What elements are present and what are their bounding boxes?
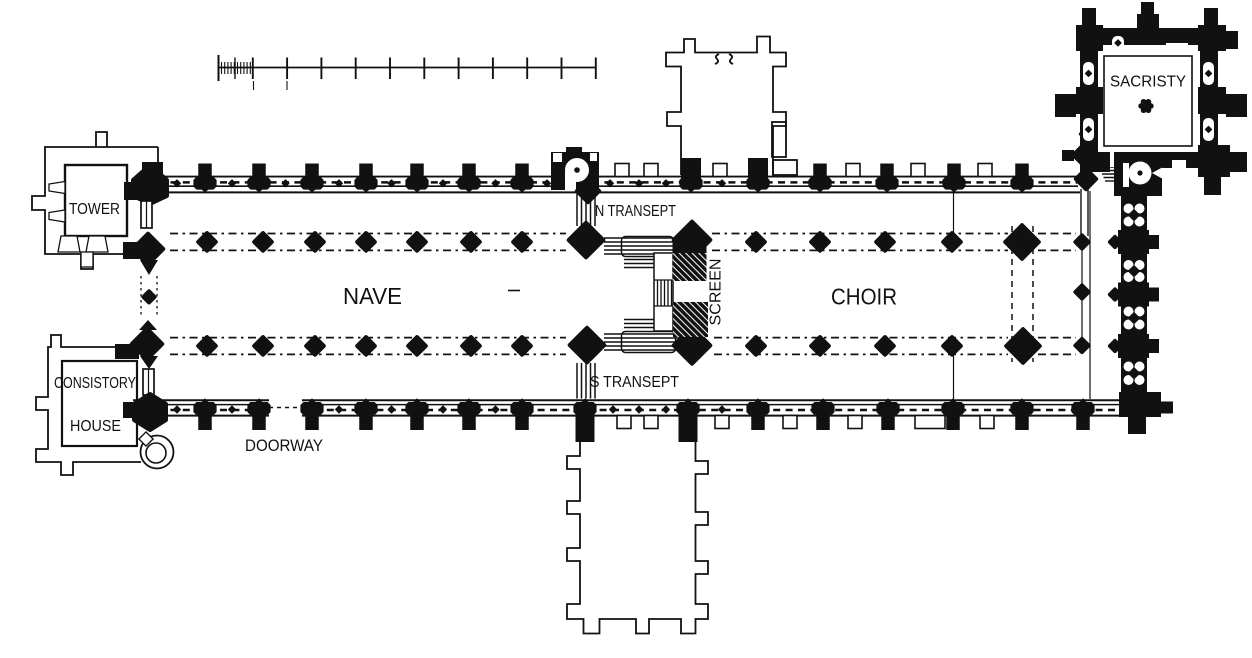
svg-text:TOWER: TOWER	[69, 201, 120, 218]
svg-text:S TRANSEPT: S TRANSEPT	[590, 374, 679, 391]
svg-text:DOORWAY: DOORWAY	[245, 437, 323, 455]
svg-text:SACRISTY: SACRISTY	[1110, 74, 1186, 91]
svg-text:SCREEN: SCREEN	[708, 259, 725, 326]
svg-text:NAVE: NAVE	[343, 283, 402, 309]
svg-text:HOUSE: HOUSE	[70, 418, 121, 435]
svg-text:CONSISTORY: CONSISTORY	[54, 375, 136, 392]
svg-text:N TRANSEPT: N TRANSEPT	[595, 203, 676, 220]
svg-text:CHOIR: CHOIR	[831, 284, 897, 310]
